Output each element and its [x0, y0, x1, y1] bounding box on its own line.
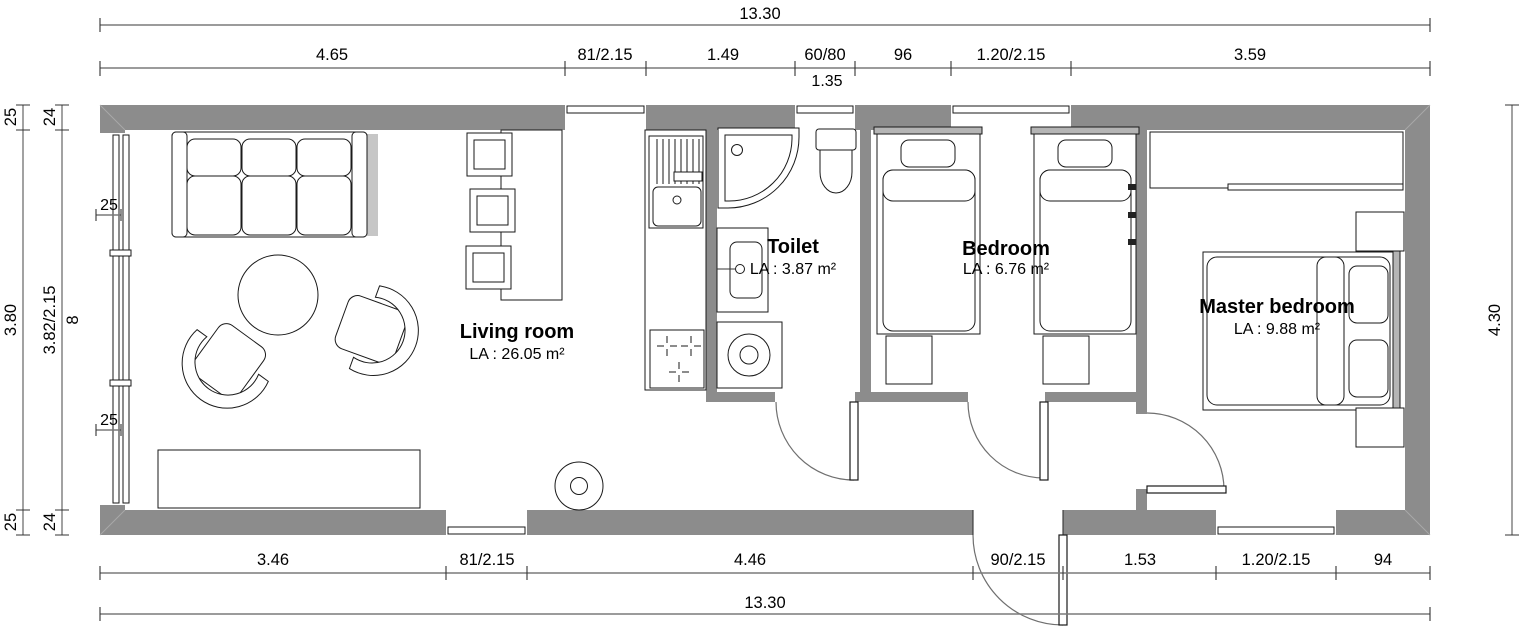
dim-left-extra: 8 — [64, 315, 82, 324]
wardrobe-sliding-rail — [1228, 184, 1403, 190]
dimension-bottom-segments: 3.46 81/2.15 4.46 90/2.15 1.53 1.20/2.15… — [100, 551, 1430, 580]
dining-chair — [470, 189, 515, 232]
armchair-right — [327, 277, 431, 388]
master-bedroom-furniture — [1150, 132, 1404, 447]
wall-toilet-right — [860, 130, 871, 402]
door-master-bedroom — [1147, 413, 1226, 493]
dim-seg: 1.20/2.15 — [1242, 551, 1311, 569]
dim-left: 3.82/2.15 — [41, 286, 59, 355]
dim-wall-mark: 25 — [100, 197, 118, 214]
floor-plan-canvas: Living room LA : 26.05 m² Toilet LA : 3.… — [0, 0, 1534, 639]
sofa-back-cushion — [187, 139, 241, 176]
wall-master-door-stub-top — [1136, 402, 1147, 414]
nightstand — [1043, 336, 1089, 384]
sofa — [172, 132, 367, 237]
kitchen-sink — [649, 136, 703, 228]
dim-seg: 3.59 — [1234, 46, 1266, 64]
sofa-armrest-right — [352, 132, 367, 237]
bed-pillow — [901, 140, 955, 167]
dim-seg: 1.53 — [1124, 551, 1156, 569]
dimension-right-overall: 4.30 — [1486, 105, 1519, 535]
nightstand — [886, 336, 932, 384]
sofa-seat-cushion — [242, 176, 296, 235]
bed-blanket-fold — [1040, 170, 1131, 201]
dim-left: 25 — [2, 513, 20, 531]
window-top-living — [565, 105, 646, 130]
room-area-master-bedroom: LA : 9.88 m² — [1234, 321, 1321, 338]
door-swing-arc — [968, 402, 1044, 478]
wall-toilet-left — [706, 130, 717, 402]
door-swing-arc — [1147, 413, 1224, 490]
door-leaf — [1147, 486, 1226, 493]
dimension-left-inner: 24 3.82/2.15 24 8 — [41, 105, 82, 535]
door-swing-arc — [973, 535, 1063, 625]
dim-bottom-overall: 13.30 — [744, 594, 785, 612]
sink-basin — [653, 187, 701, 226]
basin-drain — [736, 265, 745, 274]
wall-master-door-stub-bottom — [1136, 489, 1147, 510]
wall-right — [1405, 105, 1430, 535]
bed-pillow — [1349, 266, 1388, 323]
dining-chair — [467, 133, 512, 176]
coffee-table — [238, 255, 318, 335]
bed-headboard — [874, 127, 982, 134]
room-label-master-bedroom: Master bedroom — [1199, 296, 1355, 318]
dim-top-overall: 13.30 — [739, 5, 780, 23]
floor-lamp — [555, 462, 603, 510]
dining-chair — [466, 246, 511, 289]
room-label-toilet: Toilet — [767, 236, 819, 258]
sofa-seat-cushion — [187, 176, 241, 235]
washing-machine — [717, 322, 782, 388]
dim-left: 24 — [41, 108, 59, 126]
cooktop — [650, 330, 704, 388]
window-top-toilet — [795, 105, 855, 130]
dim-wall-mark: 25 — [100, 412, 118, 429]
wardrobe — [1150, 132, 1403, 190]
toilet-fixtures — [717, 128, 856, 388]
bed-headboard — [1393, 250, 1400, 412]
room-area-living-room: LA : 26.05 m² — [469, 346, 565, 363]
room-area-toilet: LA : 3.87 m² — [750, 261, 837, 278]
sofa-armrest-left — [172, 132, 187, 237]
wc-toilet — [816, 129, 856, 193]
room-label-bedroom: Bedroom — [962, 238, 1050, 260]
window-left-living — [100, 133, 131, 505]
sofa-side-shadow — [367, 134, 378, 236]
kitchen — [645, 130, 706, 390]
dimension-top-segments: 4.65 81/2.15 1.49 60/80 96 1.20/2.15 3.5… — [100, 46, 1430, 90]
dim-right-overall: 4.30 — [1486, 304, 1504, 336]
bed-blanket-fold — [883, 170, 975, 201]
door-toilet — [776, 402, 858, 480]
door-swing-arc — [776, 402, 854, 480]
dim-seg: 96 — [894, 46, 912, 64]
single-bed-1 — [874, 127, 982, 334]
wall-corridor-1 — [706, 392, 775, 402]
living-room-furniture — [158, 130, 603, 510]
nightstand — [1356, 408, 1404, 447]
dim-seg: 81/2.15 — [577, 46, 632, 64]
sofa-back-cushion — [297, 139, 351, 176]
window-bottom-living — [446, 510, 527, 535]
dim-seg: 94 — [1374, 551, 1392, 569]
dim-left: 3.80 — [2, 304, 20, 336]
door-leaf — [1040, 402, 1048, 480]
dimension-left-outer: 25 3.80 25 — [2, 105, 30, 535]
dim-seg: 81/2.15 — [459, 551, 514, 569]
window-mullion — [110, 380, 131, 386]
wall-top — [100, 105, 1430, 130]
wall-corridor-2 — [855, 392, 968, 402]
wall-bedroom-right — [1136, 130, 1147, 402]
dimension-top-overall: 13.30 — [100, 5, 1430, 32]
floor-plan-svg: Living room LA : 26.05 m² Toilet LA : 3.… — [0, 0, 1534, 639]
dim-seg: 1.49 — [707, 46, 739, 64]
dim-seg: 60/80 — [804, 46, 845, 64]
dim-left: 25 — [2, 108, 20, 126]
room-area-bedroom: LA : 6.76 m² — [963, 261, 1050, 278]
bed-blanket-fold — [1317, 257, 1344, 405]
dim-left: 24 — [41, 513, 59, 531]
sink-faucet — [674, 172, 702, 181]
wall-corridor-3 — [1045, 392, 1147, 402]
room-label-living-room: Living room — [460, 321, 574, 343]
sideboard — [158, 450, 420, 508]
bed-pillow — [1058, 140, 1112, 167]
single-bed-2 — [1031, 127, 1139, 334]
bed-pillow — [1349, 340, 1388, 397]
dim-seg: 3.46 — [257, 551, 289, 569]
bed-headboard — [1031, 127, 1139, 134]
dim-seg: 90/2.15 — [990, 551, 1045, 569]
window-bottom-master — [1216, 510, 1336, 535]
nightstand — [1356, 212, 1404, 251]
dim-seg: 1.20/2.15 — [977, 46, 1046, 64]
door-bedroom — [968, 402, 1048, 480]
sofa-back-cushion — [242, 139, 296, 176]
sofa-seat-cushion — [297, 176, 351, 235]
door-leaf — [850, 402, 858, 480]
dimension-bottom-overall: 13.30 — [100, 594, 1430, 621]
window-mullion — [110, 250, 131, 256]
shower — [718, 128, 799, 208]
dim-seg: 4.46 — [734, 551, 766, 569]
dim-seg: 4.65 — [316, 46, 348, 64]
window-top-bedroom — [951, 105, 1071, 130]
dim-top-sub: 1.35 — [811, 73, 842, 90]
